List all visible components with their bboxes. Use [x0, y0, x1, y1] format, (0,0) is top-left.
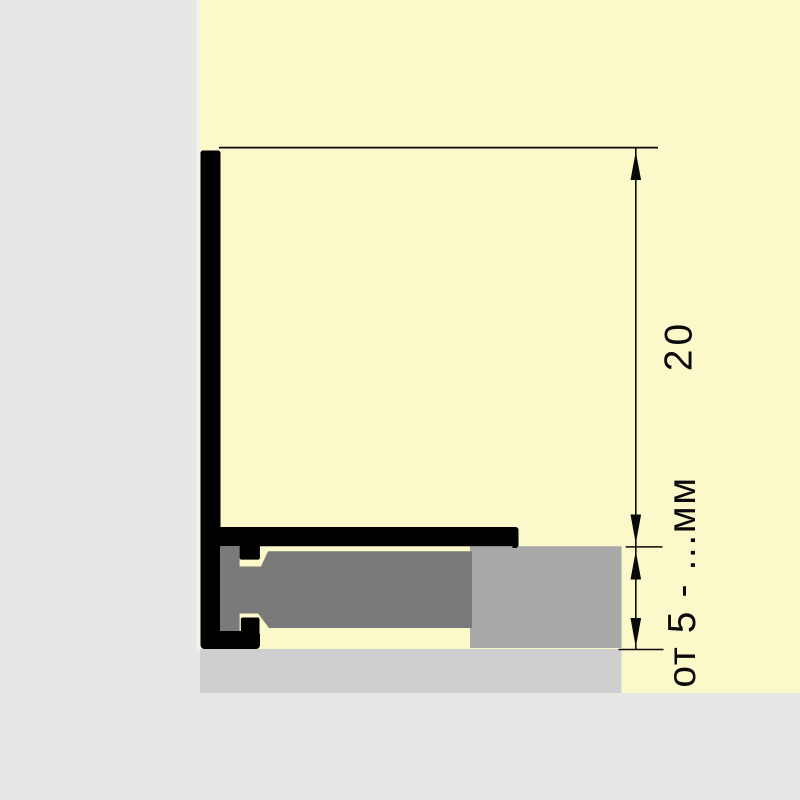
svg-text:от 5 - ...мм: от 5 - ...мм: [661, 476, 704, 687]
svg-text:20: 20: [658, 320, 701, 371]
